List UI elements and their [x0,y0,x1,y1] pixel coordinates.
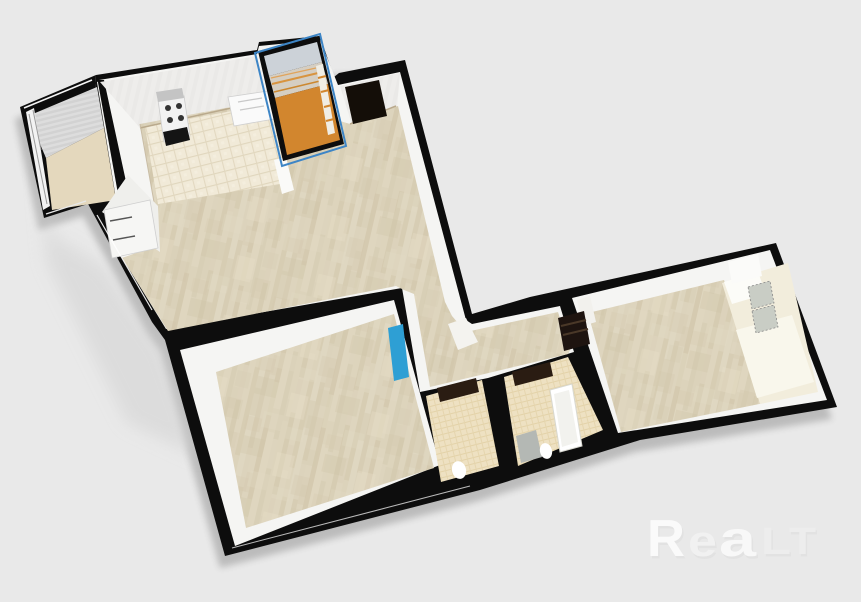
svg-text:T: T [789,521,816,563]
svg-text:L: L [761,521,791,563]
svg-text:R: R [647,510,685,568]
svg-text:a: a [719,511,758,567]
svg-text:e: e [688,517,717,566]
